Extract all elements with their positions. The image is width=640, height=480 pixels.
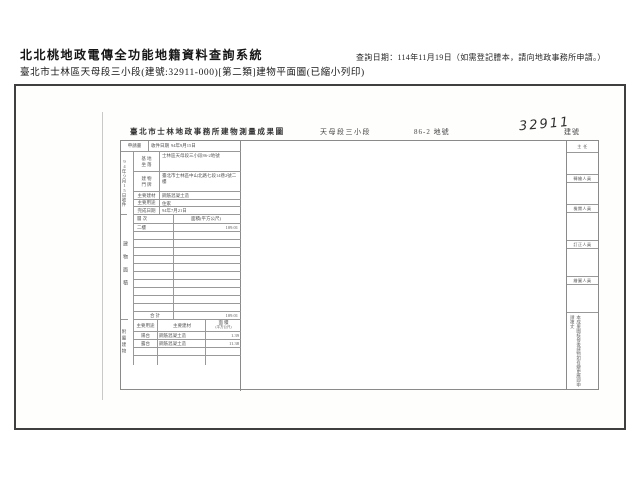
floor-table-empty-row <box>134 240 241 248</box>
floor-col-header: 層 次 <box>134 215 174 223</box>
form-left-block: 申請書 收件日期 94年9月15日 94年9月15日收件 建物面積 附屬建物 基… <box>121 141 241 391</box>
apply-label: 申請書 <box>121 141 149 151</box>
field-door-plate: 建 物 門 牌 臺北市士林區中山北路七段14巷2號二樓 <box>134 172 241 192</box>
field-completion-date: 完成日期 94年7月21日 <box>134 207 241 215</box>
stamp-box <box>567 213 598 241</box>
floor-table-empty-row <box>134 288 241 296</box>
annex-section-label: 附屬建物 <box>121 320 127 364</box>
floor-table-empty-row <box>134 264 241 272</box>
receive-date-vertical: 94年9月15日收件 <box>121 152 127 215</box>
query-date: 查詢日期：114年11月19日（如需登記謄本，請向地政事務所申請。） <box>356 52 606 63</box>
floor-table-empty-row <box>134 304 241 312</box>
area-col-header: 面積(平方公尺) <box>174 215 241 223</box>
door-value: 臺北市士林區中山北路七段14巷2號二樓 <box>160 172 241 191</box>
floor-table-total-row: 合 計 109.01 <box>134 312 241 320</box>
officer-label-4: 繪圖人員 <box>574 278 592 284</box>
annex-area-cell: 11.38 <box>206 340 241 347</box>
floor-table-empty-row <box>134 248 241 256</box>
field-site-location: 基 地 坐 落 士林區天母段三小段86-2地號 <box>134 152 241 172</box>
annex-material-header: 主要建材 <box>158 320 206 331</box>
total-value: 109.01 <box>174 312 241 319</box>
receive-date-value: 94年9月15日 <box>171 143 196 149</box>
system-title: 北北桃地政電傳全功能地籍資料查詢系統 <box>20 46 263 63</box>
floor-table-header: 層 次 面積(平方公尺) <box>134 215 241 224</box>
usage-label: 主要用途 <box>134 200 160 206</box>
stamp-box <box>567 183 598 205</box>
material-label: 主要建材 <box>134 192 160 199</box>
site-label-bottom: 坐 落 <box>141 162 151 168</box>
officer-label-2: 檢閱人員 <box>574 206 592 212</box>
parcel-number-value: 86-2 <box>414 128 431 136</box>
floor-table-empty-row <box>134 296 241 304</box>
floor-cell: 二樓 <box>134 224 174 231</box>
officer-label-3: 訂正人員 <box>574 242 592 248</box>
annex-use-cell: 露台 <box>134 340 158 347</box>
material-value: 鋼筋混凝土造 <box>160 192 241 199</box>
officer-label-1: 轉繪人員 <box>574 176 592 182</box>
annex-use-header: 主要用途 <box>134 320 158 331</box>
area-cell: 109.01 <box>174 224 241 231</box>
survey-form-box: 申請書 收件日期 94年9月15日 94年9月15日收件 建物面積 附屬建物 基… <box>120 140 567 390</box>
total-label: 合 計 <box>134 312 174 319</box>
field-usage: 主要用途 住家 <box>134 200 241 207</box>
building-number-label: 建號 <box>564 127 580 137</box>
annex-table-row: 陽台 鋼筋混凝土造 1.39 <box>134 332 241 340</box>
annex-table-empty-row <box>134 356 241 365</box>
receive-date-label: 收件日期 <box>151 143 169 149</box>
stamp-box <box>567 153 598 175</box>
officers-strip: 主 任 轉繪人員 檢閱人員 訂正人員 繪圖人員 本成果圖核發後建物如有變更應即申… <box>567 140 599 390</box>
completion-label: 完成日期 <box>134 207 160 214</box>
annex-area-cell: 1.39 <box>206 332 241 339</box>
stamp-box <box>567 285 598 313</box>
site-value: 士林區天母段三小段86-2地號 <box>160 152 241 171</box>
annex-table-empty-row <box>134 348 241 356</box>
parcel-number: 86-2 地號 <box>414 127 450 137</box>
floor-table-empty-row <box>134 232 241 240</box>
annex-area-header-bottom: (平方公尺) <box>215 326 231 330</box>
page-fold-line <box>102 112 103 400</box>
document-viewer-frame: 臺北市士林地政事務所建物測量成果圖 天母段三小段 86-2 地號 32911 建… <box>14 84 626 430</box>
stamp-box <box>567 249 598 277</box>
strip-bottom-note: 本成果圖核發後建物如有變更應即申請複丈 <box>567 313 584 390</box>
field-material: 主要建材 鋼筋混凝土造 <box>134 192 241 200</box>
annex-table-row: 露台 鋼筋混凝土造 11.38 <box>134 340 241 348</box>
strip-top-label: 主 任 <box>577 144 588 150</box>
usage-value: 住家 <box>160 200 241 206</box>
floor-table-empty-row <box>134 272 241 280</box>
annex-material-cell: 鋼筋混凝土造 <box>158 332 206 339</box>
land-section-name: 天母段三小段 <box>320 127 371 137</box>
floor-table-empty-row <box>134 280 241 288</box>
document-subtitle: 臺北市士林區天母段三小段(建號:32911-000)[第二類]建物平面圖(已縮小… <box>20 64 365 78</box>
floor-table-row: 二樓 109.01 <box>134 224 241 232</box>
parcel-number-suffix: 地號 <box>434 128 450 136</box>
floor-area-section-label: 建物面積 <box>121 215 128 320</box>
floor-table-empty-row <box>134 256 241 264</box>
annex-use-cell: 陽台 <box>134 332 158 339</box>
completion-value: 94年7月21日 <box>160 207 241 214</box>
annex-table-header: 主要用途 主要建材 面 積 (平方公尺) <box>134 320 241 332</box>
survey-form-title: 臺北市士林地政事務所建物測量成果圖 <box>130 126 285 137</box>
annex-material-cell: 鋼筋混凝土造 <box>158 340 206 347</box>
door-label-bottom: 門 牌 <box>141 182 151 188</box>
